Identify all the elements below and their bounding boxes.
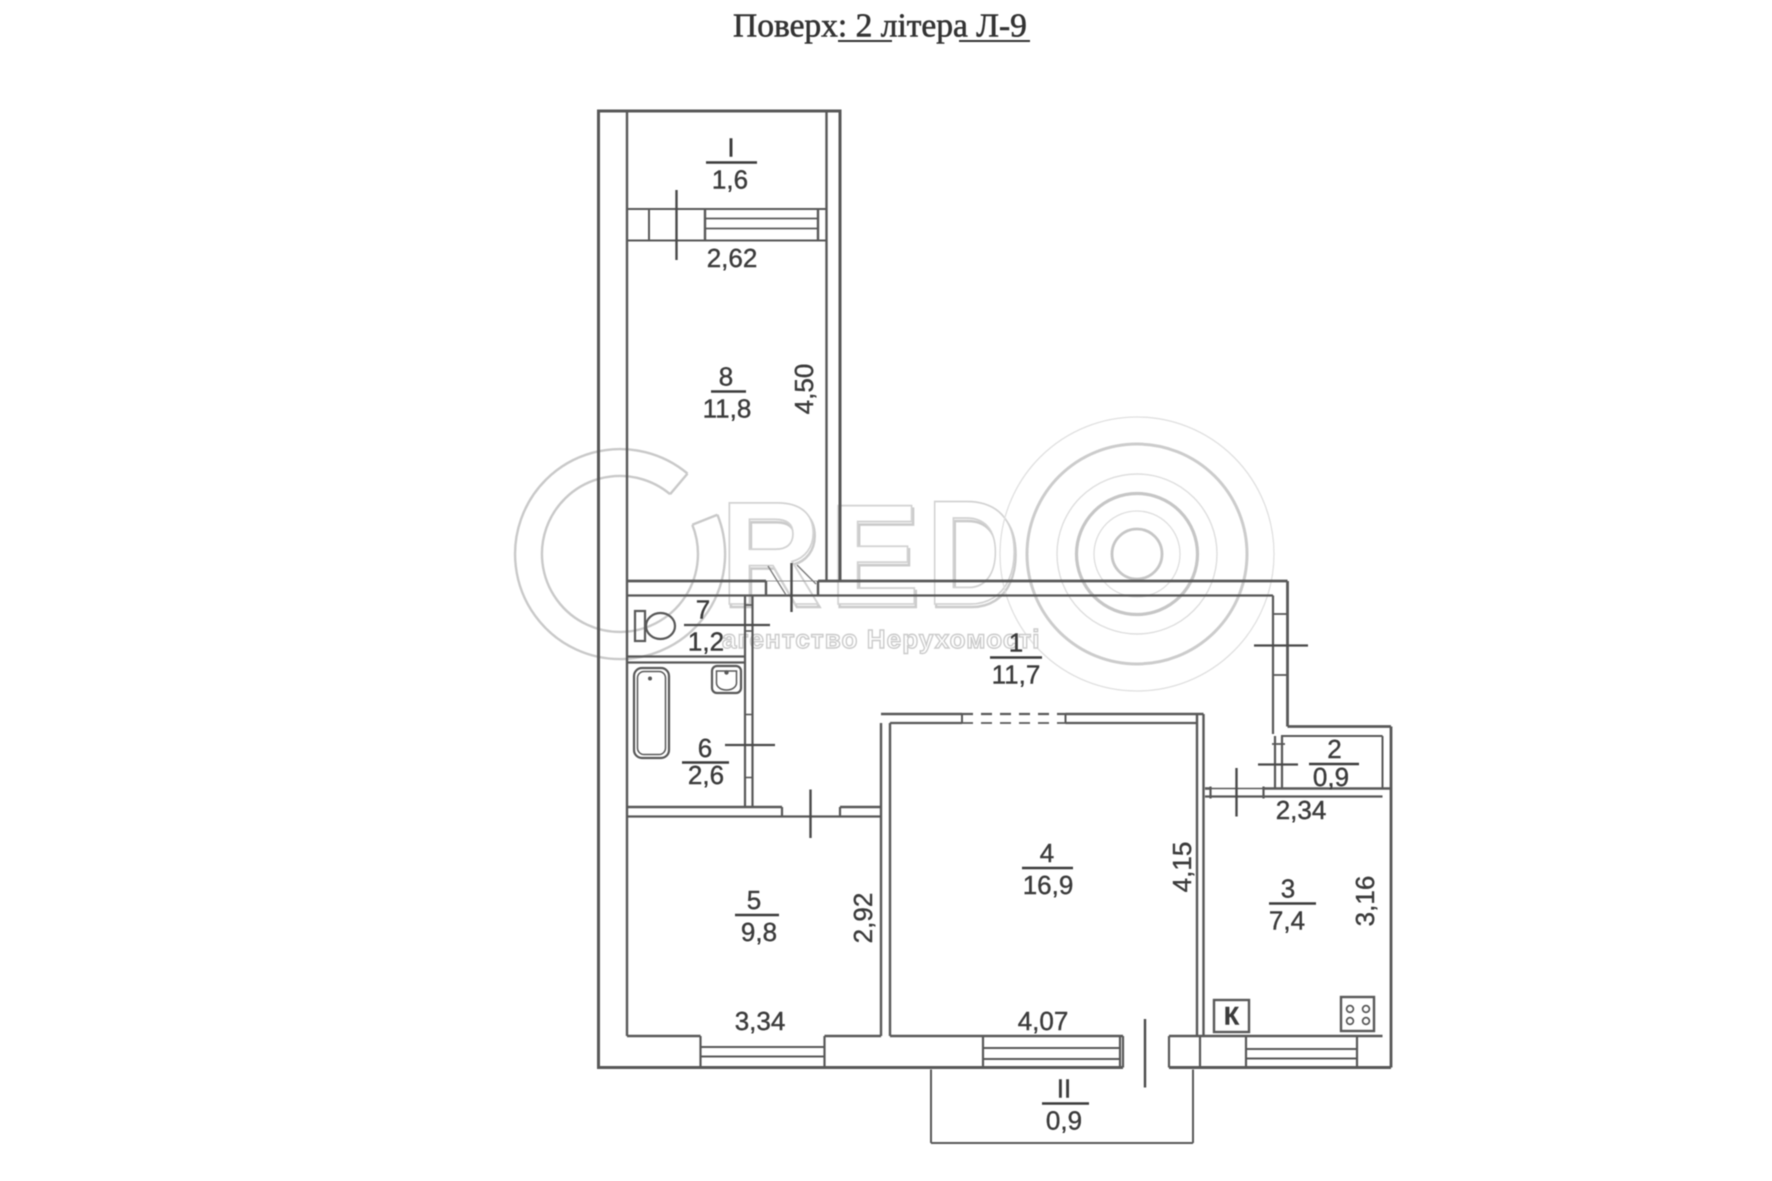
svg-text:11,7: 11,7 [992, 660, 1041, 690]
svg-text:3,16: 3,16 [1350, 876, 1380, 927]
svg-text:9,8: 9,8 [741, 917, 777, 947]
svg-text:1: 1 [1009, 628, 1023, 658]
svg-text:3: 3 [1281, 874, 1295, 904]
svg-text:3,34: 3,34 [735, 1006, 786, 1036]
svg-text:II: II [1057, 1074, 1071, 1104]
svg-text:11,8: 11,8 [703, 394, 752, 424]
svg-text:2,62: 2,62 [707, 243, 758, 273]
svg-text:Поверх: 2 літера Л-9: Поверх: 2 літера Л-9 [733, 8, 1027, 45]
svg-text:агентство Нерухомості: агентство Нерухомості [722, 624, 1041, 654]
svg-text:7,4: 7,4 [1269, 906, 1305, 936]
svg-text:2,92: 2,92 [848, 893, 878, 944]
svg-text:2,34: 2,34 [1276, 795, 1327, 825]
svg-text:4,07: 4,07 [1018, 1006, 1069, 1036]
svg-text:I: I [727, 133, 734, 163]
svg-text:D: D [926, 470, 1020, 636]
svg-text:2,6: 2,6 [688, 760, 724, 790]
svg-text:E: E [829, 475, 920, 635]
svg-text:1,6: 1,6 [712, 165, 748, 195]
svg-text:1,2: 1,2 [688, 627, 724, 657]
svg-text:5: 5 [747, 885, 761, 915]
svg-text:4,50: 4,50 [789, 364, 819, 415]
svg-text:2: 2 [1327, 734, 1341, 764]
svg-text:4: 4 [1040, 838, 1054, 868]
svg-text:4,15: 4,15 [1167, 842, 1197, 893]
svg-text:7: 7 [696, 595, 710, 625]
svg-text:0,9: 0,9 [1313, 762, 1349, 792]
svg-text:16,9: 16,9 [1023, 870, 1074, 900]
svg-text:R: R [720, 472, 821, 636]
svg-text:0,9: 0,9 [1046, 1106, 1082, 1136]
svg-text:8: 8 [719, 362, 733, 392]
svg-text:6: 6 [698, 733, 712, 763]
svg-text:К: К [1224, 1003, 1240, 1031]
